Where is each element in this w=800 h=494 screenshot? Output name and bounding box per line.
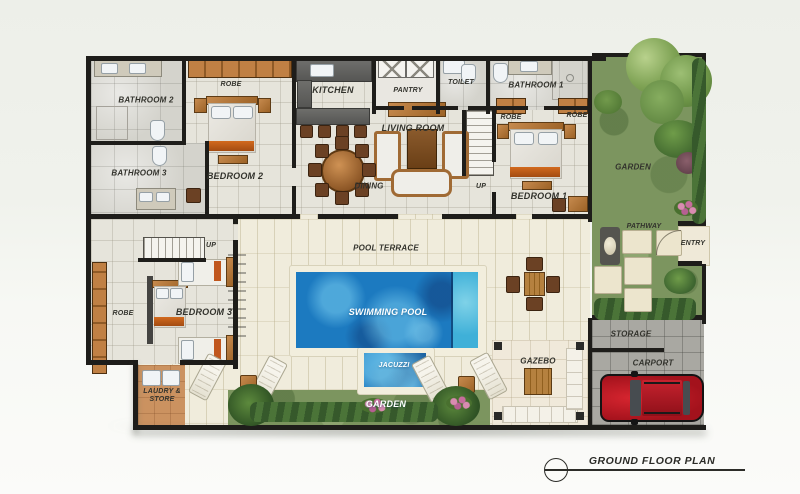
label-pool-terrace: POOL TERRACE bbox=[353, 243, 419, 252]
bed-runner bbox=[214, 261, 221, 281]
bathroom2-toilet bbox=[150, 120, 165, 141]
dining-chair bbox=[355, 144, 369, 158]
car-rear-window bbox=[683, 381, 690, 415]
bar-stool bbox=[318, 125, 331, 138]
bathroom2-sink bbox=[101, 63, 118, 74]
car-roof bbox=[642, 380, 682, 416]
flower-bed bbox=[446, 396, 472, 410]
label-gazebo: GAZEBO bbox=[520, 356, 555, 365]
pantry-shelf bbox=[378, 60, 406, 78]
label-toilet: TOILET bbox=[448, 79, 474, 87]
wall-bedroom1-left-b bbox=[492, 192, 496, 214]
stepping-stone bbox=[622, 230, 652, 254]
label-bathroom3: BATHROOM 3 bbox=[111, 168, 166, 177]
label-bedroom3: BEDROOM 3 bbox=[176, 307, 232, 317]
wall-pantry-bottom-a bbox=[372, 106, 404, 110]
bed-pillow bbox=[233, 106, 253, 119]
bedroom1-desk bbox=[568, 196, 588, 212]
outdoor-chair bbox=[526, 257, 543, 271]
bed-pillow bbox=[170, 288, 183, 299]
bar-stool bbox=[354, 125, 367, 138]
wall-bedroom2-right-b bbox=[292, 186, 296, 218]
dining-chair bbox=[315, 183, 329, 197]
gazebo-post bbox=[494, 342, 502, 350]
outdoor-chair bbox=[546, 276, 560, 293]
car-roof-rail bbox=[644, 382, 680, 384]
nightstand bbox=[258, 98, 271, 113]
stairs-wing bbox=[143, 237, 205, 259]
door-gap-wing bbox=[233, 224, 238, 240]
outdoor-chair bbox=[506, 276, 520, 293]
label-pathway: PATHWAY bbox=[627, 223, 662, 231]
pool-shallow-ledge bbox=[453, 272, 478, 348]
bathroom3-toilet bbox=[152, 146, 167, 166]
label-bedroom2: BEDROOM 2 bbox=[207, 171, 263, 181]
garden-shrub bbox=[594, 90, 622, 114]
bedroom3-robe-cabinet bbox=[92, 262, 107, 374]
label-bedroom1: BEDROOM 1 bbox=[511, 191, 567, 201]
kitchen-counter-left bbox=[297, 80, 312, 108]
label-robe-bedroom1-right: ROBE bbox=[566, 112, 587, 120]
title-circle-icon bbox=[544, 458, 568, 482]
bed-pillow bbox=[538, 132, 558, 145]
wall-top-main bbox=[86, 56, 606, 61]
label-living-room: LIVING ROOM bbox=[382, 123, 445, 133]
bar-stool bbox=[300, 125, 313, 138]
wall-bedroom1-garden bbox=[588, 56, 592, 222]
dining-chair bbox=[308, 163, 322, 177]
label-bathroom2: BATHROOM 2 bbox=[118, 95, 173, 104]
wall-toilet-bottom-a bbox=[436, 106, 458, 110]
label-kitchen: KITCHEN bbox=[312, 85, 353, 95]
floor-plan: BATHROOM 2 BATHROOM 3 ROBE BEDROOM 2 KIT… bbox=[0, 0, 800, 494]
bed-bench bbox=[218, 155, 248, 164]
title-block: GROUND FLOOR PLAN bbox=[540, 450, 750, 486]
label-robe-bedroom1-left: ROBE bbox=[500, 114, 521, 122]
door-gap-living bbox=[398, 214, 442, 219]
gazebo-post bbox=[576, 412, 584, 420]
kitchen-island bbox=[296, 108, 370, 125]
nightstand bbox=[194, 98, 207, 113]
bed-bench bbox=[522, 181, 552, 190]
door-gap-bedroom2 bbox=[300, 214, 318, 219]
tree-canopy bbox=[640, 80, 684, 124]
car-mirror bbox=[631, 419, 638, 425]
outdoor-table bbox=[524, 272, 545, 296]
gazebo-post bbox=[576, 342, 584, 350]
kitchen-counter-top bbox=[296, 60, 372, 82]
title-line bbox=[545, 469, 745, 471]
label-entry: ENTRY bbox=[681, 240, 706, 248]
dryer bbox=[162, 370, 180, 386]
label-laundry-store: LAUDRY & STORE bbox=[136, 388, 188, 404]
washer bbox=[142, 370, 161, 386]
label-swimming-pool: SWIMMING POOL bbox=[349, 307, 428, 317]
bed-runner bbox=[208, 141, 254, 151]
hedge-right-edge bbox=[692, 58, 706, 224]
shower-drain bbox=[566, 74, 574, 82]
label-pantry: PANTRY bbox=[393, 87, 422, 95]
bathroom1-toilet bbox=[493, 63, 508, 83]
kitchen-sink bbox=[310, 64, 334, 77]
wall-carport-left bbox=[588, 318, 592, 430]
bed-pillow bbox=[156, 288, 169, 299]
label-bathroom1: BATHROOM 1 bbox=[508, 80, 563, 89]
car-roof-rail bbox=[644, 412, 680, 414]
label-garden-bottom: GARDEN bbox=[366, 399, 406, 409]
wall-bathroom2-right bbox=[182, 56, 186, 145]
bathroom1-sink bbox=[520, 61, 538, 72]
label-garden-side: GARDEN bbox=[615, 162, 651, 171]
wall-bedroom1-left-a bbox=[492, 110, 496, 162]
gazebo-table bbox=[524, 368, 552, 395]
drawing-title: GROUND FLOOR PLAN bbox=[589, 455, 715, 467]
bathroom2-sink bbox=[129, 63, 146, 74]
door-gap-bedroom1 bbox=[516, 214, 532, 219]
bed-pillow bbox=[181, 340, 194, 360]
stepping-stone bbox=[624, 257, 652, 285]
dining-chair bbox=[335, 191, 349, 205]
stairs-main bbox=[466, 110, 494, 176]
label-robe-bedroom2: ROBE bbox=[220, 81, 241, 89]
pool-lane-divider bbox=[451, 272, 453, 348]
wall-left-main bbox=[86, 56, 91, 365]
nightstand bbox=[564, 124, 576, 139]
wall-bedroom2-right-a bbox=[292, 56, 296, 168]
dining-chair bbox=[315, 144, 329, 158]
hedge-bottom-garden bbox=[250, 402, 438, 422]
fountain-stone bbox=[604, 237, 616, 255]
wall-bathroom1-bottom-b bbox=[544, 106, 592, 110]
bedroom2-chair bbox=[186, 188, 201, 203]
wall-wing-right bbox=[233, 219, 238, 369]
label-robe-bedroom3: ROBE bbox=[112, 310, 133, 318]
label-up-wing: UP bbox=[206, 242, 216, 250]
nightstand bbox=[497, 124, 509, 139]
label-carport: CARPORT bbox=[633, 358, 674, 367]
bed-pillow bbox=[211, 106, 231, 119]
dining-chair bbox=[362, 163, 376, 177]
coffee-table bbox=[407, 129, 437, 169]
bed-runner bbox=[510, 167, 560, 177]
wall-bottom-main bbox=[133, 425, 706, 430]
wall-bathroom23-divider bbox=[86, 141, 186, 145]
label-storage: STORAGE bbox=[611, 329, 652, 338]
entry-bush bbox=[664, 268, 696, 294]
bed-pillow bbox=[514, 132, 534, 145]
bathroom3-sink bbox=[139, 192, 153, 202]
bed-runner bbox=[154, 317, 184, 326]
car bbox=[598, 371, 706, 425]
gazebo-sofa-right bbox=[566, 348, 583, 410]
bedroom2-robe-cabinet bbox=[188, 60, 292, 78]
bathroom2-shower bbox=[96, 106, 128, 140]
wall-stair-corridor bbox=[462, 110, 466, 176]
pantry-shelf bbox=[406, 60, 434, 78]
label-jacuzzi: JACUZZI bbox=[379, 362, 410, 370]
label-up-main: UP bbox=[476, 183, 486, 191]
wall-wing-bottom-b bbox=[180, 360, 238, 365]
wall-entry-stub-bottom bbox=[678, 261, 702, 266]
bed-pillow bbox=[181, 262, 194, 282]
dining-chair bbox=[335, 136, 349, 150]
gazebo-post bbox=[494, 412, 502, 420]
car-windshield bbox=[630, 380, 641, 416]
sofa bbox=[391, 169, 452, 197]
stepping-stone bbox=[594, 266, 622, 294]
wall-wing-stairs-bottom bbox=[138, 258, 206, 262]
stepping-stone bbox=[624, 288, 652, 312]
label-dining: DINING bbox=[354, 181, 383, 190]
wall-wing-bottom-a bbox=[86, 360, 138, 365]
car-mirror bbox=[631, 371, 638, 377]
outdoor-chair bbox=[526, 297, 543, 311]
bathroom3-sink bbox=[156, 192, 170, 202]
flower-bed bbox=[674, 200, 698, 216]
wall-storage-carport-divider bbox=[592, 348, 664, 352]
